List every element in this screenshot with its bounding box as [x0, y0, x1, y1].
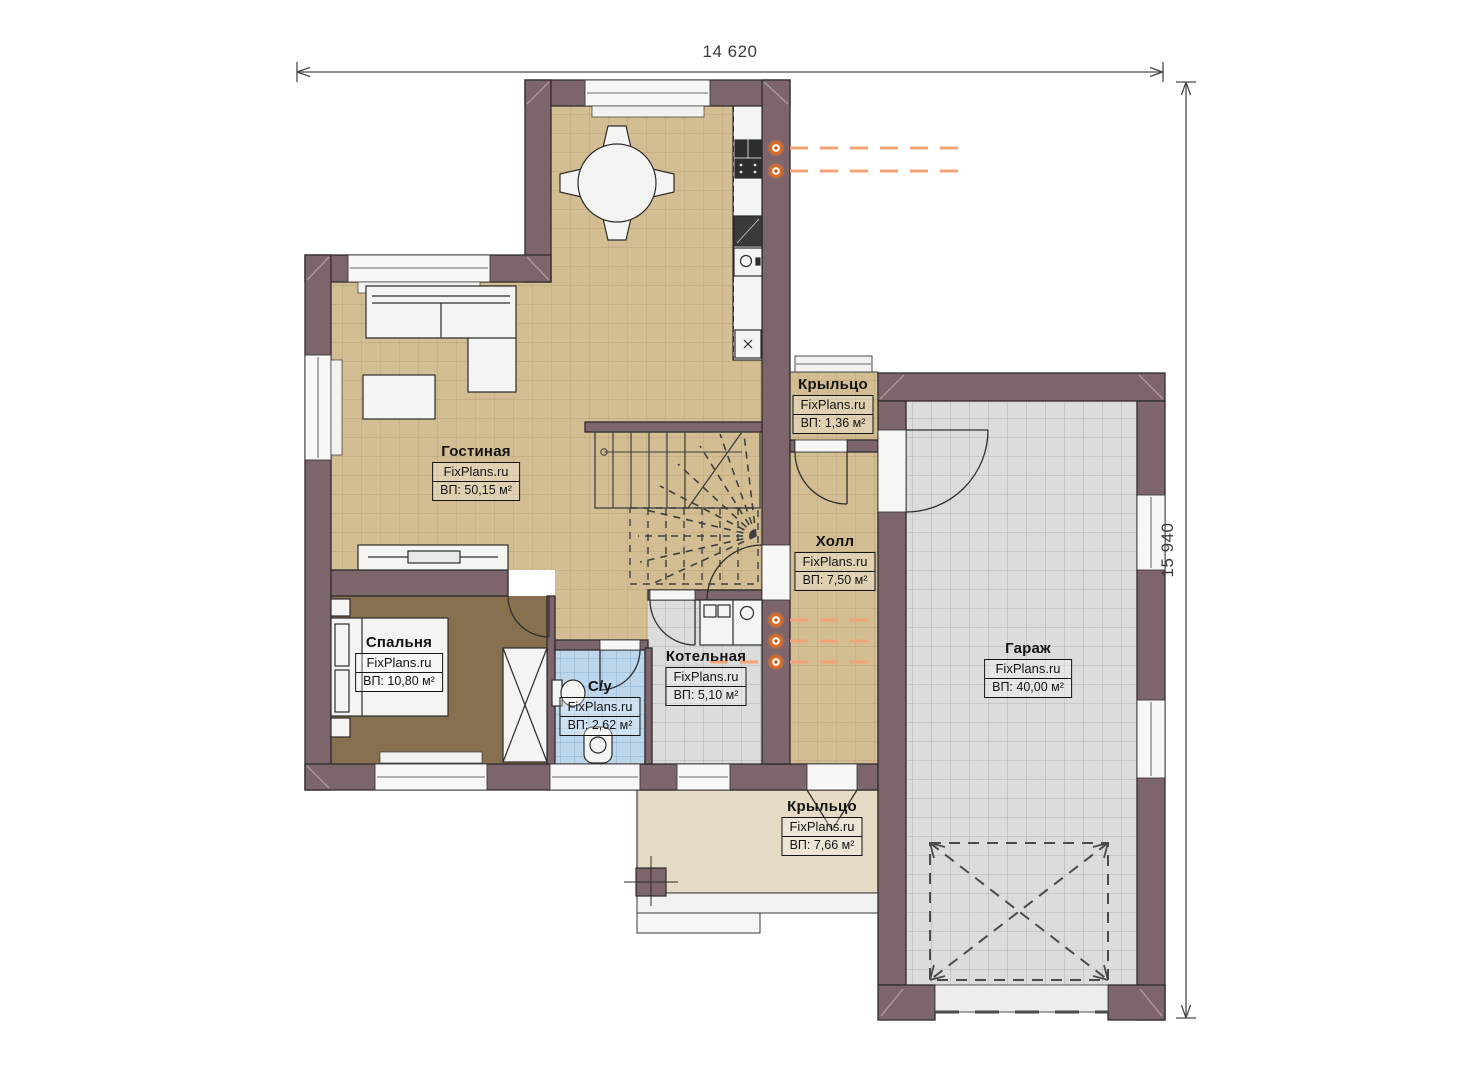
room-info-box: FixPlans.ru ВП: 10,80 м²: [355, 653, 443, 692]
nightstand-bottom: [331, 718, 350, 737]
room-name: Крыльцо: [781, 798, 862, 815]
room-label-porch-bottom: Крыльцо FixPlans.ru ВП: 7,66 м²: [781, 798, 862, 856]
garage-window-lower: [1137, 700, 1165, 778]
dimension-height-label: 15 940: [1158, 523, 1178, 578]
room-name: Котельная: [665, 648, 746, 665]
room-area: ВП: 5,10 м²: [666, 687, 745, 705]
kitchen-window: [585, 80, 710, 117]
floor-plan: 14 620 15 940 Гостиная FixPlans.ru ВП: 5…: [0, 0, 1473, 1080]
room-area: ВП: 1,36 м²: [793, 415, 872, 433]
room-area: ВП: 50,15 м²: [433, 482, 519, 500]
room-brand: FixPlans.ru: [560, 698, 639, 717]
room-info-box: FixPlans.ru ВП: 1,36 м²: [792, 395, 873, 434]
room-name: Холл: [794, 533, 875, 550]
boiler-equipment: [700, 600, 762, 645]
room-name: С/у: [559, 678, 640, 695]
room-brand: FixPlans.ru: [793, 396, 872, 415]
nightstand-top: [331, 599, 350, 616]
room-name: Гараж: [984, 640, 1072, 657]
fridge-icon: [734, 216, 762, 246]
bedroom-window: [375, 752, 487, 790]
room-label-bathroom: С/у FixPlans.ru ВП: 2,62 м²: [559, 678, 640, 736]
porch-top-steps: [795, 356, 872, 372]
tv-stand: [358, 545, 508, 570]
room-info-box: FixPlans.ru ВП: 7,66 м²: [781, 817, 862, 856]
room-brand: FixPlans.ru: [985, 660, 1071, 679]
kitchen-sink-icon: [734, 248, 762, 276]
bathroom-window: [550, 764, 640, 790]
room-name: Гостиная: [432, 443, 520, 460]
porch-step-1: [637, 893, 878, 913]
counter-box-icon: [735, 330, 761, 358]
room-area: ВП: 7,50 м²: [795, 572, 874, 590]
room-brand: FixPlans.ru: [782, 818, 861, 837]
kitchen-counter: [733, 106, 762, 360]
room-info-box: FixPlans.ru ВП: 5,10 м²: [665, 667, 746, 706]
room-label-bedroom: Спальня FixPlans.ru ВП: 10,80 м²: [355, 634, 443, 692]
coffee-table: [363, 375, 435, 419]
floor-plan-drawing: [0, 0, 1473, 1080]
room-label-boiler: Котельная FixPlans.ru ВП: 5,10 м²: [665, 648, 746, 706]
room-info-box: FixPlans.ru ВП: 7,50 м²: [794, 552, 875, 591]
room-brand: FixPlans.ru: [433, 463, 519, 482]
room-label-garage: Гараж FixPlans.ru ВП: 40,00 м²: [984, 640, 1072, 698]
hall-floor: [790, 452, 878, 764]
boiler-window: [677, 764, 730, 790]
room-info-box: FixPlans.ru ВП: 50,15 м²: [432, 462, 520, 501]
room-brand: FixPlans.ru: [356, 654, 442, 673]
room-area: ВП: 40,00 м²: [985, 679, 1071, 697]
room-name: Спальня: [355, 634, 443, 651]
room-label-hall: Холл FixPlans.ru ВП: 7,50 м²: [794, 533, 875, 591]
porch-step-2: [637, 913, 760, 933]
dimension-width-label: 14 620: [297, 42, 1163, 62]
room-area: ВП: 10,80 м²: [356, 673, 442, 691]
room-name: Крыльцо: [792, 376, 873, 393]
room-info-box: FixPlans.ru ВП: 40,00 м²: [984, 659, 1072, 698]
living-left-window: [305, 355, 342, 460]
room-info-box: FixPlans.ru ВП: 2,62 м²: [559, 697, 640, 736]
room-area: ВП: 7,66 м²: [782, 837, 861, 855]
wardrobe: [503, 648, 547, 762]
room-label-living: Гостиная FixPlans.ru ВП: 50,15 м²: [432, 443, 520, 501]
room-label-porch-top: Крыльцо FixPlans.ru ВП: 1,36 м²: [792, 376, 873, 434]
room-brand: FixPlans.ru: [666, 668, 745, 687]
room-brand: FixPlans.ru: [795, 553, 874, 572]
garage-door: [935, 985, 1108, 1012]
room-area: ВП: 2,62 м²: [560, 717, 639, 735]
